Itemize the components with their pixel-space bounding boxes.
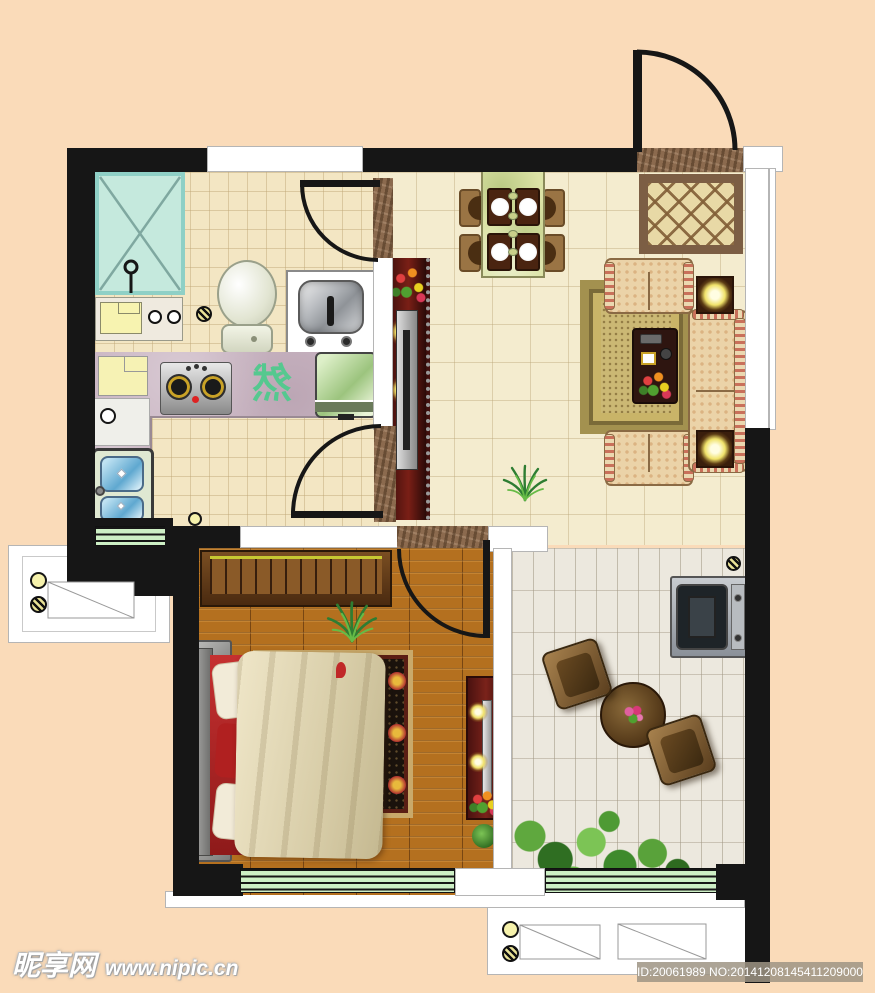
- window-bedroom: [240, 868, 455, 893]
- tv-cabinet-flowers: [389, 260, 428, 306]
- serving-dish-1: [508, 192, 518, 200]
- watermark-site-url: www.nipic.cn: [105, 957, 238, 981]
- rug-medallion-1: [388, 672, 406, 690]
- shower-tray: [95, 172, 185, 295]
- washbasin-faucet-handle: [327, 296, 334, 326]
- kitchen-door-casing: [374, 426, 396, 522]
- window-living-right: [745, 168, 769, 430]
- serving-dish-2: [508, 212, 518, 220]
- bathroom-floor-drain-icon: [196, 306, 212, 322]
- serving-dish-4: [508, 248, 518, 256]
- image-id-bar: ID:20061989 NO:20141208145411209000: [637, 962, 863, 982]
- entry-door-arc: [633, 50, 735, 152]
- washing-machine-window: [688, 596, 716, 638]
- loveseat-bottom-seat-divider: [648, 434, 650, 472]
- lamp-glow-top: [698, 278, 732, 312]
- window-living-right-outer: [769, 168, 776, 430]
- plate-3: [491, 243, 509, 261]
- blanket-red-accent: [336, 662, 346, 678]
- stove-knob-dot-1: [186, 366, 191, 371]
- loveseat-top-arm-left: [604, 262, 615, 310]
- watermark: 昵享网 www.nipic.cn: [12, 944, 238, 984]
- stove-burner-right: [200, 374, 226, 400]
- balcony-table-flowers: [620, 702, 646, 726]
- loveseat-top-seat-divider: [648, 272, 650, 310]
- rug-medallion-3: [388, 776, 406, 794]
- window-balcony: [545, 868, 718, 893]
- balcony-floor-drain-icon: [726, 556, 741, 571]
- wall-bath-living: [373, 255, 393, 430]
- living-floor-plant: [502, 462, 548, 506]
- vanity-knob-left: [148, 310, 162, 324]
- washer-knob-1: [734, 594, 742, 602]
- loveseat-bottom-arm-left: [604, 434, 615, 482]
- plate-1: [491, 198, 509, 216]
- wall-interior-bedroom-top: [240, 526, 400, 548]
- coffee-table-tray: [640, 334, 662, 344]
- stove-ignition-light: [192, 396, 199, 403]
- floor-plan-canvas: 然: [0, 0, 875, 993]
- dresser-candle-2: [468, 752, 488, 772]
- wall-left: [67, 148, 95, 545]
- coffee-table-bowl: [660, 348, 672, 360]
- watermark-site-name: 昵享网: [12, 944, 96, 984]
- wardrobe-hanger-rail: [210, 556, 382, 594]
- wall-bedroom-bottom-corner: [173, 864, 243, 896]
- wall-bottom-pillar: [455, 868, 545, 896]
- stove-burner-left: [166, 374, 192, 400]
- sink-faucet: [95, 486, 105, 496]
- vanity-knob-right: [167, 310, 181, 324]
- bed-blanket: [234, 651, 386, 860]
- countertop-appliance-panel: [315, 400, 377, 412]
- vanity-tray-notch: [118, 302, 140, 314]
- bath-door-casing: [373, 178, 393, 258]
- coffee-table-photo: [641, 352, 656, 365]
- stove-knob-dot-2: [194, 364, 199, 369]
- entry-rug: [639, 174, 743, 254]
- stove-knob-dot-3: [202, 366, 207, 371]
- toilet-flush-button: [251, 336, 257, 342]
- washer-knob-2: [734, 634, 742, 642]
- kitchen-counter-glyph: 然: [248, 360, 296, 408]
- serving-dish-3: [508, 230, 518, 238]
- toilet-tank: [221, 324, 273, 354]
- ac-bottom-drain-icon: [502, 945, 519, 962]
- cutting-board-notch: [124, 356, 148, 372]
- washbasin-knob-right: [341, 336, 352, 347]
- countertop-appliance-foot: [338, 414, 354, 420]
- ac-left-drain-icon: [30, 596, 47, 613]
- wall-bedroom-balcony: [493, 548, 512, 895]
- window-kitchen: [95, 526, 167, 546]
- window-top: [207, 146, 363, 172]
- kitchen-nook-knob: [100, 408, 116, 424]
- ac-left-vent-circle: [30, 572, 47, 589]
- entry-doormat: [637, 148, 743, 172]
- bedroom-floor-plant: [326, 600, 378, 646]
- rug-medallion-2: [388, 724, 406, 742]
- wall-right: [745, 428, 770, 983]
- lamp-glow-bottom: [698, 432, 732, 466]
- sofa-main-seat-divider: [696, 390, 734, 392]
- television-screen: [403, 330, 410, 450]
- wall-top-middle: [363, 148, 637, 172]
- loveseat-top-arm-right: [683, 262, 694, 310]
- ac-bottom-vent-circle: [502, 921, 519, 938]
- wall-bedroom-left: [173, 530, 199, 896]
- coffee-table-flowers: [637, 368, 673, 400]
- plate-2: [519, 198, 537, 216]
- dresser-candle-1: [468, 702, 488, 722]
- kitchen-floor-knob: [188, 512, 202, 526]
- washbasin-knob-left: [305, 336, 316, 347]
- bedroom-door-threshold: [397, 526, 490, 548]
- kitchen-prep-nook: [93, 398, 150, 446]
- plate-4: [519, 243, 537, 261]
- toilet-bowl: [217, 260, 277, 328]
